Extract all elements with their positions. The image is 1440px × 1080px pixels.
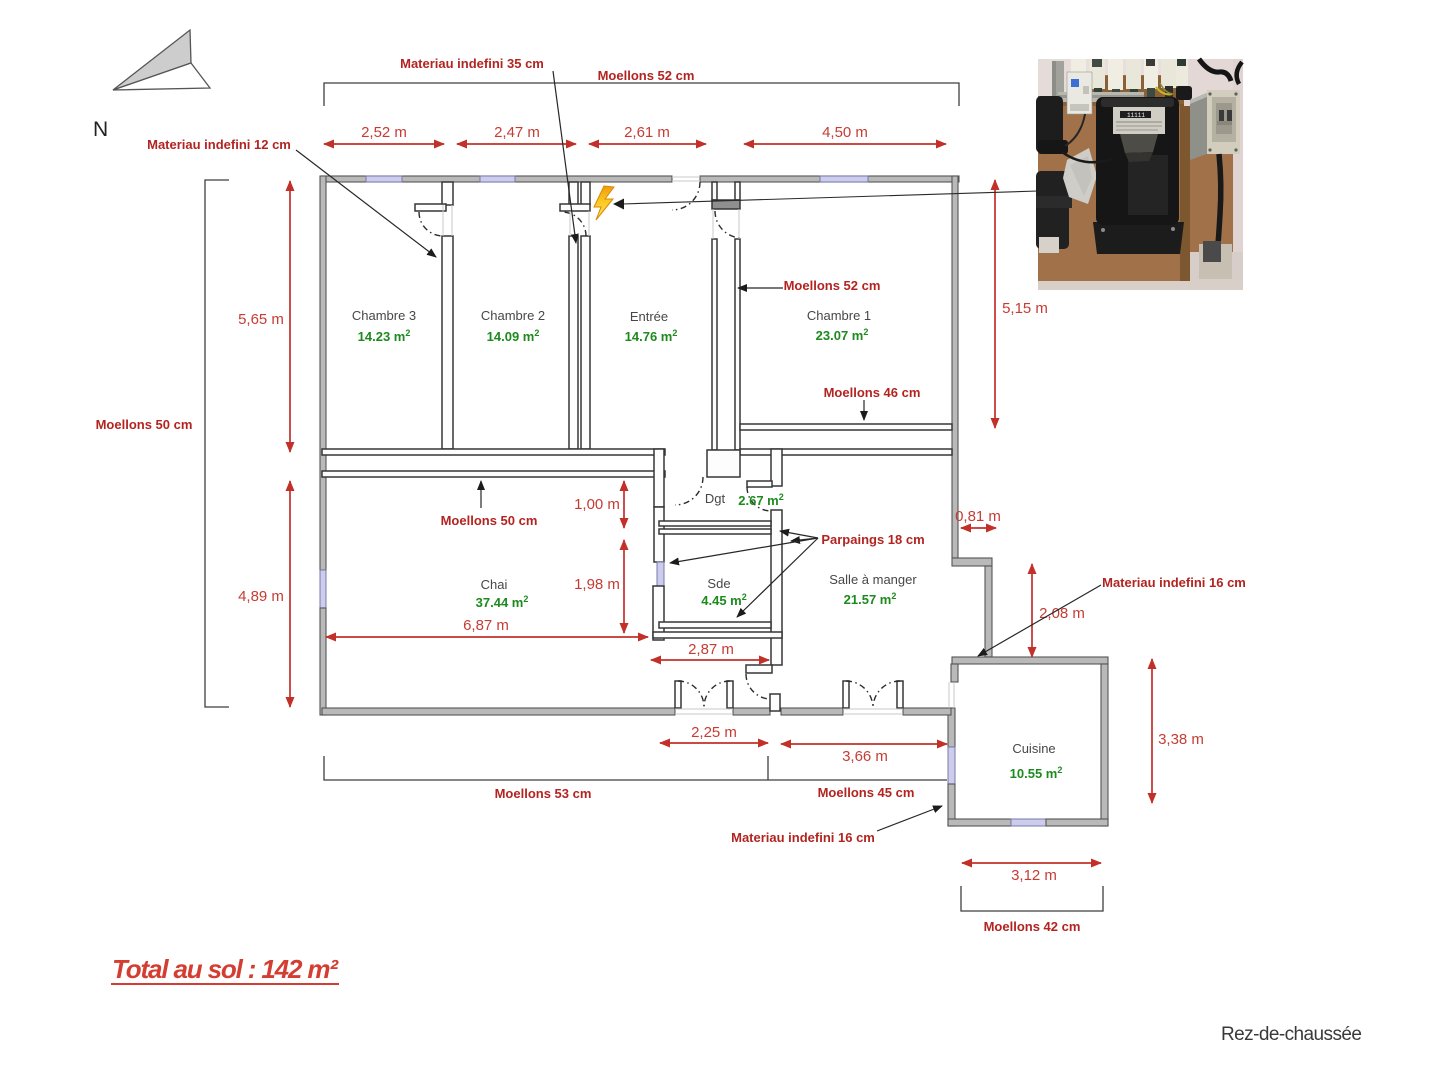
svg-text:Moellons 50 cm: Moellons 50 cm bbox=[441, 513, 538, 528]
svg-text:Moellons 52 cm: Moellons 52 cm bbox=[598, 68, 695, 83]
svg-text:Moellons 52 cm: Moellons 52 cm bbox=[784, 278, 881, 293]
svg-text:Cuisine: Cuisine bbox=[1012, 741, 1055, 756]
svg-text:5,15 m: 5,15 m bbox=[1002, 300, 1048, 317]
svg-text:2,61 m: 2,61 m bbox=[624, 124, 670, 141]
svg-text:2,25 m: 2,25 m bbox=[691, 724, 737, 741]
svg-text:0,81 m: 0,81 m bbox=[955, 508, 1001, 525]
svg-text:11111: 11111 bbox=[1127, 112, 1145, 119]
svg-text:Entrée: Entrée bbox=[630, 309, 668, 324]
svg-text:Moellons 42 cm: Moellons 42 cm bbox=[984, 919, 1081, 934]
svg-text:Total au sol : 142 m²: Total au sol : 142 m² bbox=[112, 954, 339, 984]
svg-text:3,66 m: 3,66 m bbox=[842, 748, 888, 765]
svg-text:Dgt: Dgt bbox=[705, 491, 726, 506]
svg-text:3,12 m: 3,12 m bbox=[1011, 867, 1057, 884]
svg-text:6,87 m: 6,87 m bbox=[463, 617, 509, 634]
svg-text:2,52 m: 2,52 m bbox=[361, 124, 407, 141]
svg-text:Chai: Chai bbox=[481, 577, 508, 592]
svg-text:10.55 m2: 10.55 m2 bbox=[1010, 765, 1063, 781]
svg-text:Materiau indefini 12 cm: Materiau indefini 12 cm bbox=[147, 137, 291, 152]
svg-text:4.45 m2: 4.45 m2 bbox=[701, 592, 747, 608]
svg-text:5,65 m: 5,65 m bbox=[238, 311, 284, 328]
svg-text:1,98 m: 1,98 m bbox=[574, 576, 620, 593]
svg-text:Moellons 45 cm: Moellons 45 cm bbox=[818, 785, 915, 800]
svg-text:14.76 m2: 14.76 m2 bbox=[625, 328, 678, 344]
svg-text:N: N bbox=[93, 118, 108, 141]
svg-text:Chambre 3: Chambre 3 bbox=[352, 308, 416, 323]
svg-text:4,89 m: 4,89 m bbox=[238, 588, 284, 605]
svg-text:Moellons 50 cm: Moellons 50 cm bbox=[96, 417, 193, 432]
svg-text:Moellons 53 cm: Moellons 53 cm bbox=[495, 786, 592, 801]
svg-text:14.23 m2: 14.23 m2 bbox=[358, 328, 411, 344]
svg-text:23.07 m2: 23.07 m2 bbox=[816, 327, 869, 343]
svg-text:21.57 m2: 21.57 m2 bbox=[844, 591, 897, 607]
svg-text:Materiau indefini 16 cm: Materiau indefini 16 cm bbox=[731, 830, 875, 845]
svg-text:Rez-de-chaussée: Rez-de-chaussée bbox=[1221, 1024, 1362, 1045]
svg-text:Parpaings 18 cm: Parpaings 18 cm bbox=[821, 532, 924, 547]
svg-text:2,87 m: 2,87 m bbox=[688, 641, 734, 658]
svg-text:2,47 m: 2,47 m bbox=[494, 124, 540, 141]
svg-text:14.09 m2: 14.09 m2 bbox=[487, 328, 540, 344]
svg-text:37.44 m2: 37.44 m2 bbox=[476, 594, 529, 610]
svg-text:1,00 m: 1,00 m bbox=[574, 496, 620, 513]
svg-text:Salle à manger: Salle à manger bbox=[829, 572, 917, 587]
svg-text:Sde: Sde bbox=[707, 576, 730, 591]
svg-text:Materiau indefini 35 cm: Materiau indefini 35 cm bbox=[400, 56, 544, 71]
svg-text:Chambre 1: Chambre 1 bbox=[807, 308, 871, 323]
svg-text:4,50 m: 4,50 m bbox=[822, 124, 868, 141]
svg-text:Materiau indefini 16 cm: Materiau indefini 16 cm bbox=[1102, 575, 1246, 590]
svg-text:Chambre 2: Chambre 2 bbox=[481, 308, 545, 323]
svg-text:Moellons 46 cm: Moellons 46 cm bbox=[824, 385, 921, 400]
svg-text:2.67 m2: 2.67 m2 bbox=[738, 492, 784, 508]
svg-text:3,38 m: 3,38 m bbox=[1158, 731, 1204, 748]
